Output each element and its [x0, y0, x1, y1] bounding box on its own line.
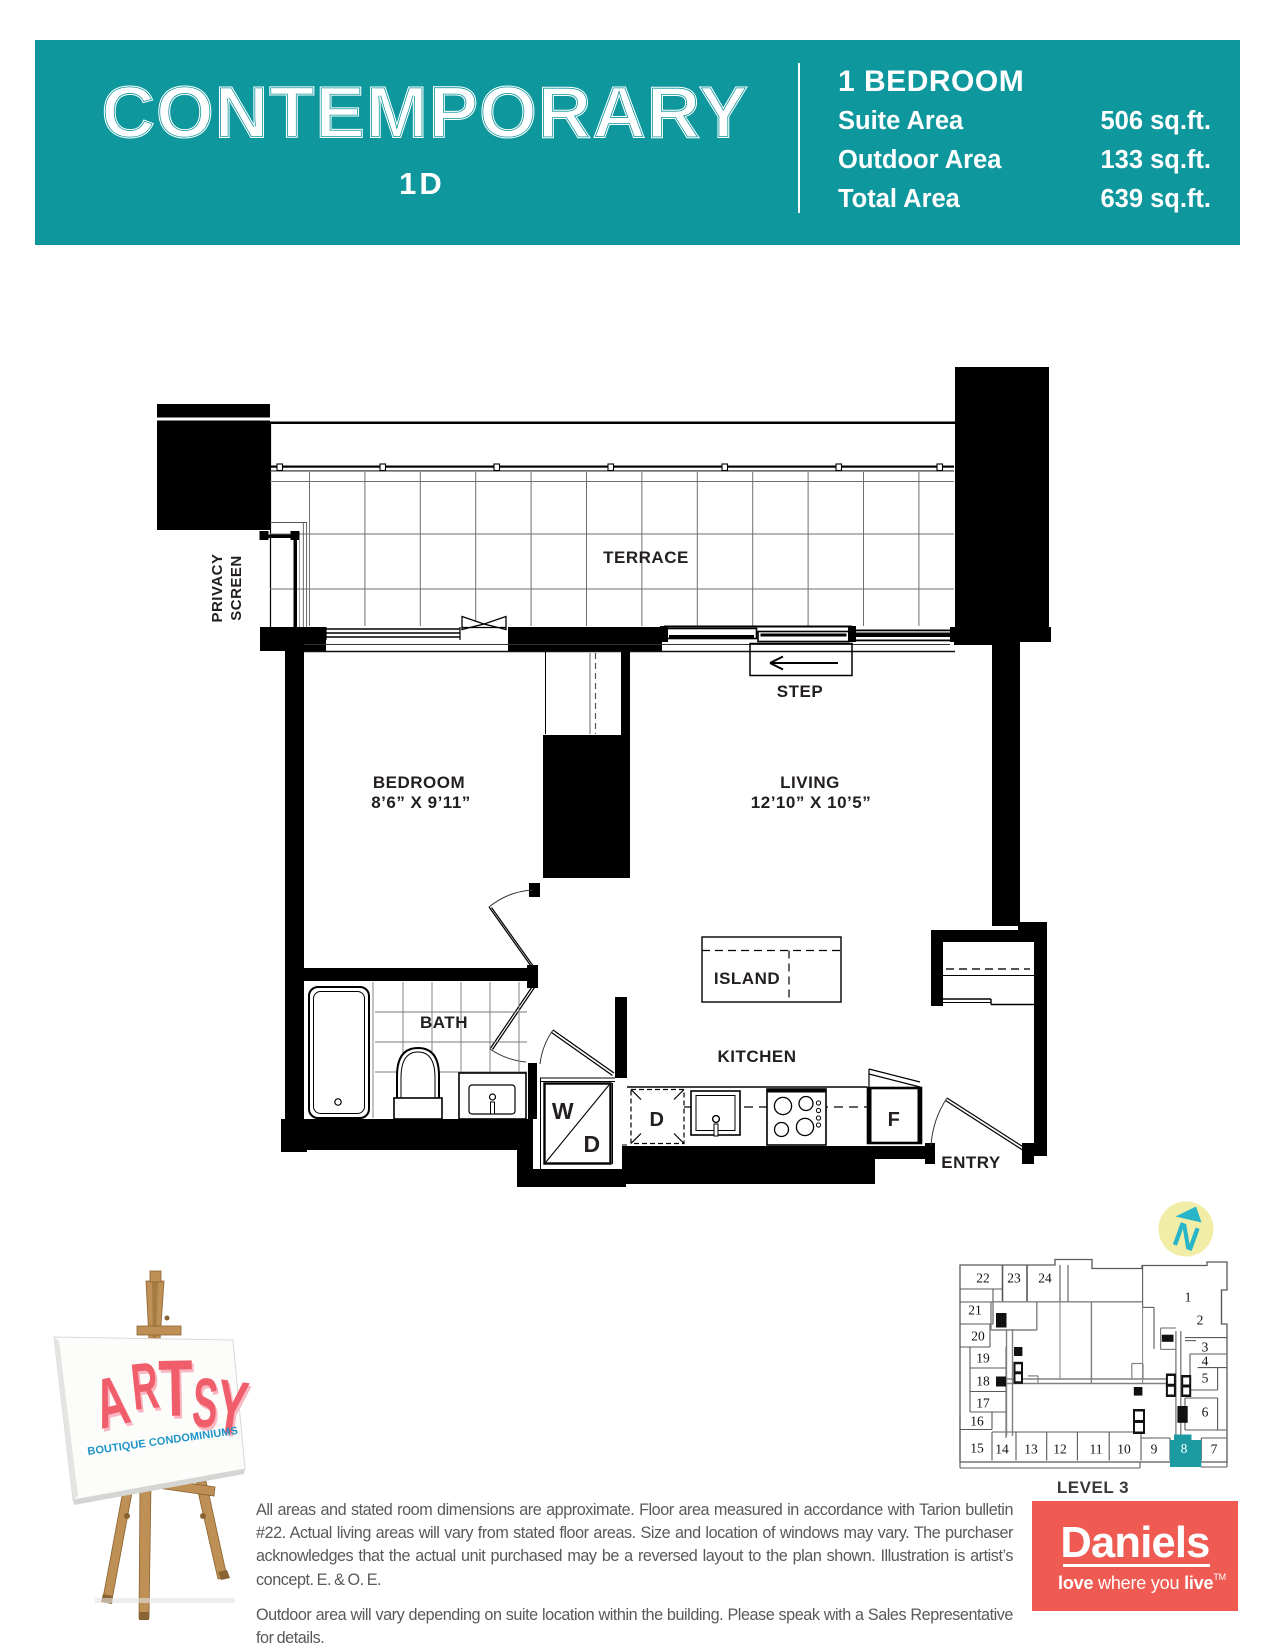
svg-text:F: F: [888, 1109, 901, 1131]
svg-text:SCREEN: SCREEN: [228, 555, 245, 621]
svg-text:ISLAND: ISLAND: [714, 969, 780, 988]
svg-text:KITCHEN: KITCHEN: [717, 1047, 796, 1066]
svg-text:D: D: [650, 1109, 665, 1131]
svg-text:CONTEMPORARY: CONTEMPORARY: [101, 71, 749, 153]
svg-text:PRIVACY: PRIVACY: [209, 553, 226, 622]
svg-text:T: T: [158, 1342, 194, 1433]
svg-text:W: W: [552, 1098, 574, 1124]
svg-text:13: 13: [1024, 1442, 1038, 1457]
svg-text:BEDROOM: BEDROOM: [373, 773, 465, 792]
svg-text:12: 12: [1053, 1442, 1067, 1457]
svg-text:D: D: [583, 1131, 600, 1157]
svg-text:2: 2: [1197, 1313, 1204, 1328]
svg-text:3: 3: [1202, 1340, 1209, 1355]
svg-text:24: 24: [1038, 1271, 1052, 1286]
svg-text:5: 5: [1202, 1371, 1209, 1386]
svg-text:1: 1: [1185, 1290, 1192, 1305]
svg-text:9: 9: [1151, 1442, 1158, 1457]
svg-text:STEP: STEP: [777, 682, 823, 701]
svg-text:23: 23: [1007, 1271, 1021, 1286]
svg-text:10: 10: [1117, 1442, 1131, 1457]
svg-text:19: 19: [976, 1351, 990, 1366]
svg-text:4: 4: [1202, 1354, 1209, 1369]
svg-text:8: 8: [1181, 1441, 1188, 1456]
svg-text:11: 11: [1090, 1442, 1103, 1457]
svg-text:12’10” X 10’5”: 12’10” X 10’5”: [751, 793, 871, 812]
svg-text:18: 18: [976, 1374, 990, 1389]
svg-text:14: 14: [995, 1442, 1009, 1457]
svg-text:15: 15: [970, 1441, 984, 1456]
svg-text:8’6” X 9’11”: 8’6” X 9’11”: [371, 793, 471, 812]
svg-text:ENTRY: ENTRY: [941, 1153, 1001, 1172]
svg-text:6: 6: [1202, 1405, 1209, 1420]
svg-text:20: 20: [971, 1329, 985, 1344]
svg-text:7: 7: [1211, 1442, 1218, 1457]
svg-text:17: 17: [976, 1396, 990, 1411]
svg-text:TERRACE: TERRACE: [603, 548, 689, 567]
svg-text:BATH: BATH: [420, 1013, 468, 1032]
svg-text:16: 16: [970, 1414, 984, 1429]
svg-text:21: 21: [968, 1303, 982, 1318]
svg-text:LIVING: LIVING: [780, 773, 840, 792]
svg-text:22: 22: [976, 1271, 990, 1286]
